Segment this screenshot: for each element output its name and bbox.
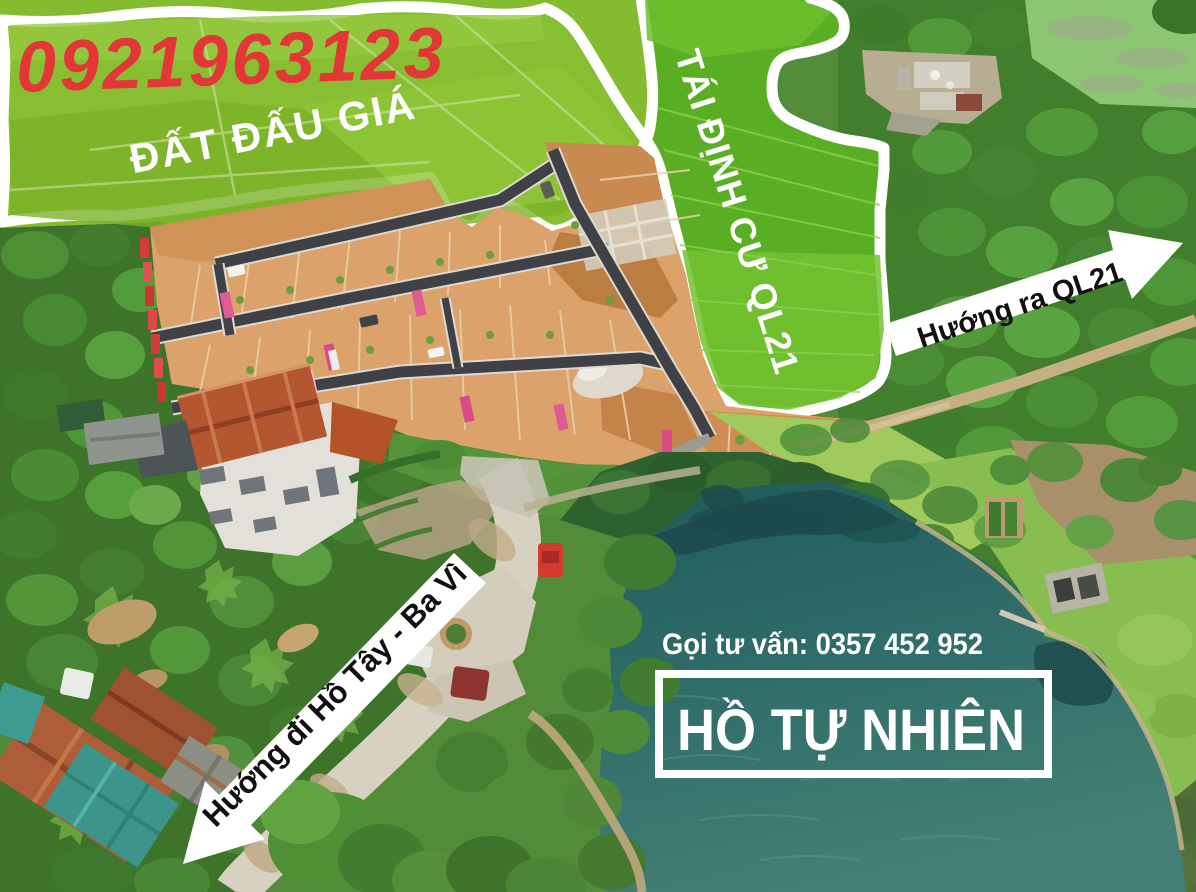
svg-text:HỒ TỰ NHIÊN: HỒ TỰ NHIÊN	[677, 698, 1025, 763]
svg-text:Gọi tư vấn: 0357 452 952: Gọi tư vấn: 0357 452 952	[662, 628, 983, 661]
